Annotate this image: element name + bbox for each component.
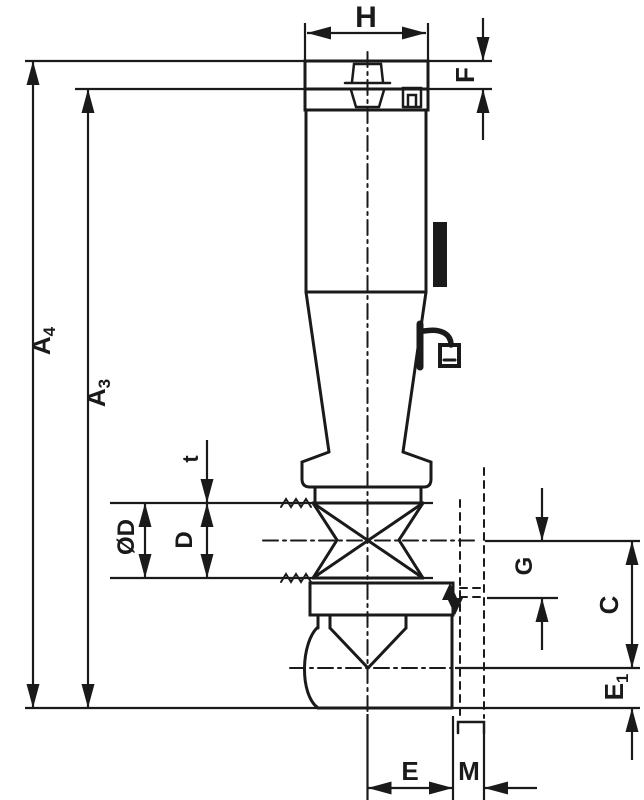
dimension-lines — [25, 18, 640, 800]
dim-label-c: C — [594, 595, 624, 614]
dim-label-f: F — [450, 67, 480, 83]
dim-label-e: E — [401, 756, 418, 786]
dim-label-e1: E1 — [599, 674, 632, 701]
taper-right-edge — [403, 292, 426, 452]
disc-outline — [310, 583, 453, 615]
dim-label-a4: A4 — [26, 326, 59, 355]
hidden-line-inner — [460, 500, 484, 718]
detail-marker — [420, 324, 459, 367]
dim-label-d: D — [171, 531, 198, 548]
dim-label-phi-d: ØD — [113, 519, 140, 555]
part-view — [263, 52, 484, 733]
dim-label-g: G — [511, 557, 538, 576]
dim-label-m: M — [458, 756, 480, 786]
lower-body-edges — [318, 615, 452, 708]
drawing-canvas: H F A4 A3 t ØD D G C E1 E M — [0, 0, 644, 800]
dim-label-a3: A3 — [81, 379, 114, 407]
knurl-mark — [433, 222, 447, 287]
dim-label-t: t — [178, 455, 203, 463]
stud-end-bracket — [458, 722, 484, 733]
taper-left-edge — [306, 292, 329, 452]
dim-label-h: H — [355, 1, 377, 34]
technical-drawing: H F A4 A3 t ØD D G C E1 E M — [0, 0, 644, 800]
cap-slot-detail — [403, 88, 421, 107]
